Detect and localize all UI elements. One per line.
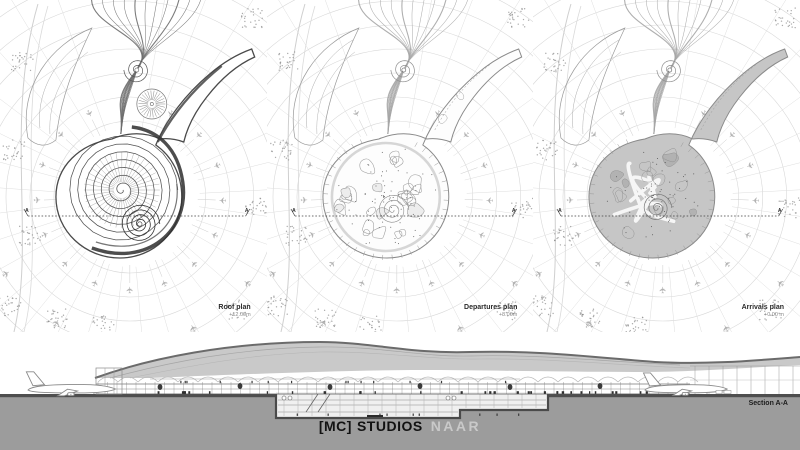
presentation-board: ✈✈✈✈✈✈✈✈✈✈✈✈✈✈✈✈✈✈✈✈ A A Roof plan +12.0…	[0, 0, 800, 332]
plan-level: +12.00m	[218, 312, 250, 319]
svg-text:✈: ✈	[508, 275, 521, 289]
svg-text:✈: ✈	[485, 194, 493, 204]
svg-text:✈: ✈	[317, 317, 331, 330]
logo-name: STUDIOS	[357, 418, 423, 434]
svg-text:✈: ✈	[300, 196, 308, 206]
section-mark-a-left: A	[292, 208, 296, 214]
svg-text:✈: ✈	[218, 194, 226, 204]
svg-text:✈: ✈	[721, 322, 735, 332]
panel-roof-plan: ✈✈✈✈✈✈✈✈✈✈✈✈✈✈✈✈✈✈✈✈ A A Roof plan +12.0…	[0, 0, 267, 332]
departures-plan-drawing: ✈✈✈✈✈✈✈✈✈✈✈✈✈✈✈✈✈✈✈✈✈✈✈ A A	[267, 0, 534, 332]
svg-text:✈: ✈	[478, 158, 489, 170]
panel-departures-plan: ✈✈✈✈✈✈✈✈✈✈✈✈✈✈✈✈✈✈✈✈✈✈✈ A A Departures p…	[267, 0, 534, 332]
plan-title: Arrivals plan	[742, 303, 784, 312]
arrivals-plan-drawing: ✈✈✈✈✈✈✈✈✈✈✈✈✈✈✈✈✈✈✈✈✈✈✈ A A	[533, 0, 800, 332]
svg-text:✈: ✈	[159, 277, 171, 288]
svg-text:✈: ✈	[189, 257, 202, 270]
svg-text:✈: ✈	[693, 277, 705, 288]
logo-name-wrap: STUDIOS	[357, 418, 423, 436]
svg-text:✈: ✈	[307, 229, 318, 241]
svg-text:✈: ✈	[304, 160, 315, 172]
svg-text:✈: ✈	[60, 258, 73, 271]
svg-text:✈: ✈	[82, 108, 94, 120]
svg-text:✈: ✈	[455, 257, 468, 270]
section-mark-a-left: A	[25, 208, 29, 214]
svg-text:✈: ✈	[37, 160, 48, 172]
logo-bracket: [MC]	[319, 418, 352, 434]
svg-text:✈: ✈	[40, 229, 51, 241]
svg-text:✈: ✈	[775, 275, 788, 289]
plan-caption: Departures plan +8.00m	[464, 303, 517, 319]
svg-text:✈: ✈	[533, 268, 546, 282]
svg-text:✈: ✈	[33, 196, 41, 206]
svg-text:✈: ✈	[476, 228, 487, 240]
svg-text:✈: ✈	[744, 158, 755, 170]
svg-text:✈: ✈	[593, 258, 606, 271]
svg-text:✈: ✈	[659, 286, 669, 294]
section-mark-a-right: A	[512, 208, 516, 214]
logo-suffix: NAAR	[431, 418, 481, 434]
plans-row: ✈✈✈✈✈✈✈✈✈✈✈✈✈✈✈✈✈✈✈✈ A A Roof plan +12.0…	[0, 0, 800, 332]
svg-text:✈: ✈	[241, 275, 254, 289]
svg-text:✈: ✈	[192, 128, 205, 141]
svg-text:✈: ✈	[126, 286, 136, 294]
plan-caption: Arrivals plan +0.00 m	[742, 303, 784, 319]
plan-caption: Roof plan +12.00m	[218, 303, 250, 319]
svg-text:✈: ✈	[187, 322, 201, 332]
svg-text:✈: ✈	[722, 257, 735, 270]
svg-text:✈: ✈	[393, 286, 403, 294]
svg-text:✈: ✈	[573, 229, 584, 241]
svg-text:✈: ✈	[357, 278, 369, 289]
svg-text:✈: ✈	[725, 128, 738, 141]
svg-text:✈: ✈	[90, 278, 102, 289]
section-label: Section A-A	[749, 400, 788, 407]
svg-text:✈: ✈	[327, 258, 340, 271]
logo-fine-print	[367, 415, 383, 417]
plan-level: +8.00m	[464, 312, 517, 319]
svg-text:✈: ✈	[51, 317, 65, 330]
svg-text:✈: ✈	[623, 278, 635, 289]
roof-plan-artwork: ✈✈✈✈✈✈✈✈✈✈✈✈✈✈✈✈✈✈✈✈	[0, 0, 267, 332]
section-band: Section A-A [MC]STUDIOSNAAR	[0, 332, 800, 450]
svg-text:✈: ✈	[0, 268, 13, 282]
svg-text:✈: ✈	[615, 108, 627, 120]
svg-text:✈: ✈	[349, 108, 361, 120]
svg-text:✈: ✈	[454, 322, 468, 332]
panel-arrivals-plan: ✈✈✈✈✈✈✈✈✈✈✈✈✈✈✈✈✈✈✈✈✈✈✈ A A Arrivals pla…	[533, 0, 800, 332]
plan-title: Roof plan	[218, 303, 250, 312]
svg-text:✈: ✈	[426, 277, 438, 288]
arrivals-plan-artwork: ✈✈✈✈✈✈✈✈✈✈✈✈✈✈✈✈✈✈✈✈✈✈✈	[533, 0, 800, 332]
svg-text:✈: ✈	[267, 268, 280, 282]
section-mark-a-right: A	[245, 208, 249, 214]
section-mark-a-left: A	[559, 208, 563, 214]
departures-plan-artwork: ✈✈✈✈✈✈✈✈✈✈✈✈✈✈✈✈✈✈✈✈✈✈✈	[267, 0, 534, 332]
plan-title: Departures plan	[464, 303, 517, 312]
svg-text:✈: ✈	[570, 160, 581, 172]
plan-level: +0.00 m	[742, 312, 784, 319]
section-mark-a-right: A	[778, 208, 782, 214]
studio-logo: [MC]STUDIOSNAAR	[0, 418, 800, 436]
svg-text:✈: ✈	[566, 196, 574, 206]
svg-text:✈: ✈	[211, 158, 222, 170]
roof-plan-drawing: ✈✈✈✈✈✈✈✈✈✈✈✈✈✈✈✈✈✈✈✈ A A	[0, 0, 267, 332]
svg-text:✈: ✈	[752, 194, 760, 204]
svg-text:✈: ✈	[584, 317, 598, 330]
svg-text:✈: ✈	[209, 228, 220, 240]
svg-text:✈: ✈	[458, 128, 471, 141]
svg-text:✈: ✈	[743, 228, 754, 240]
